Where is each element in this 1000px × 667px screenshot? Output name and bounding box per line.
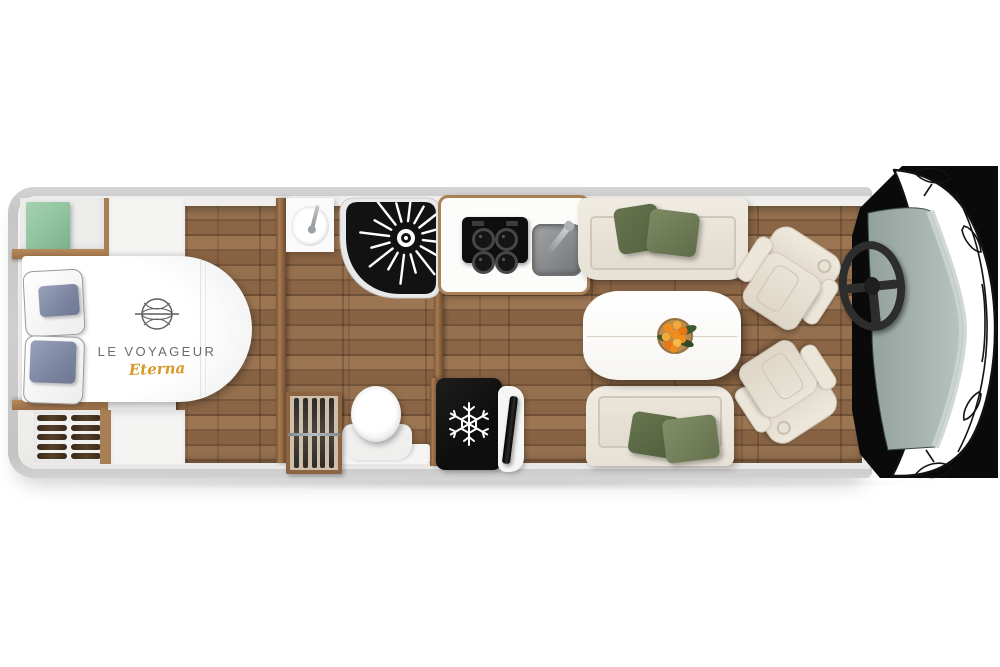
- brand-model: Eterna: [62, 357, 253, 382]
- hanger-rail: [288, 433, 340, 436]
- kitchen-sink: [532, 224, 582, 276]
- globe-emblem-icon: [135, 292, 179, 336]
- hob-burners: [472, 228, 518, 258]
- motorhome-floorplan: LE VOYAGEUR Eterna: [0, 0, 1000, 667]
- snowflake-icon: [446, 401, 492, 447]
- flower-bowl: [655, 316, 697, 356]
- ground-shadow: [30, 476, 960, 490]
- shower-tray: [338, 196, 442, 300]
- hob-knobs: [472, 221, 518, 226]
- overhead-wardrobe: [104, 198, 185, 258]
- hanger-column: [37, 415, 67, 459]
- olive-cushion: [662, 414, 721, 464]
- hanger-wardrobe: [34, 412, 104, 462]
- olive-cushion: [646, 208, 701, 258]
- partition-wall: [276, 198, 286, 463]
- brand-logo: LE VOYAGEUR Eterna: [62, 288, 252, 384]
- refrigerator: [436, 378, 502, 470]
- bedside-cabinet: [106, 410, 185, 464]
- toilet-bowl: [351, 386, 401, 442]
- hanger-column: [71, 415, 101, 459]
- hob-4-burners: [462, 217, 528, 263]
- hanging-wardrobe: [286, 392, 342, 474]
- green-storage-box: [26, 202, 70, 250]
